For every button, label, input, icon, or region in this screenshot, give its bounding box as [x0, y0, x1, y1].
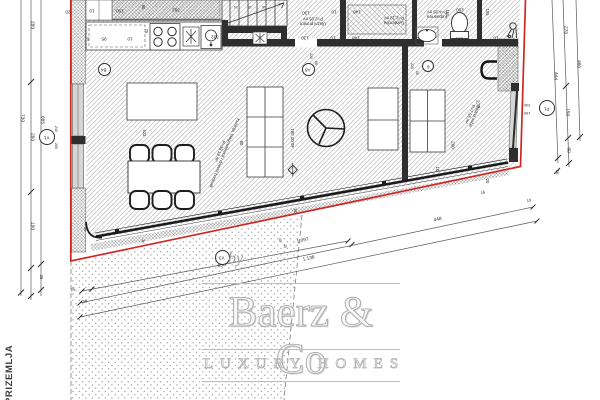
dim-label: 190	[29, 222, 34, 230]
dim-label: 20	[65, 9, 70, 14]
dim-label: 30	[140, 239, 145, 244]
dim-label: 260	[53, 143, 57, 149]
dim-label: 20	[485, 179, 489, 184]
dim-label: 80	[239, 141, 243, 146]
ref-circle: A8	[302, 63, 315, 76]
dim-label: 14	[234, 4, 238, 8]
dim-label: 148	[352, 35, 360, 40]
ref-circle: B4	[98, 63, 111, 76]
dim-label: 10	[414, 36, 419, 41]
dim-label: 15	[248, 4, 252, 8]
dim-label: 332	[211, 34, 219, 39]
ref-circle: P1	[539, 100, 555, 116]
watermark-by: by	[228, 250, 243, 268]
dim-label: 392	[172, 7, 180, 12]
dim-label: 50	[293, 209, 297, 214]
dim-label: 260	[455, 36, 463, 41]
plan-title: PRIZEMLJA	[4, 345, 15, 400]
dim-label: 16	[262, 4, 266, 8]
dim-label: 40	[277, 238, 281, 242]
watermark-rule-bottom	[202, 381, 400, 382]
room-label: KupaonicaP=4.05 m²	[427, 9, 447, 20]
dim-label: 30	[82, 227, 86, 231]
dim-label: 06	[414, 71, 418, 75]
dim-label: 220	[308, 53, 312, 59]
dim-label: 130	[301, 35, 309, 40]
dim-label: 10	[493, 35, 498, 40]
dim-label: 90	[141, 5, 145, 10]
floor-plan-canvas: 2010100392907559510332141516130101481301…	[0, 0, 600, 400]
watermark-rule-top	[202, 283, 400, 284]
ref-circle: 6	[422, 60, 434, 72]
dim-label: 06	[313, 61, 317, 65]
kitchen-island	[127, 83, 197, 120]
dim-label: 25	[282, 244, 286, 248]
room-label: Ulazni prostorP=2.05 m²	[300, 16, 327, 27]
room-label: GarderobaP=2.19 m²	[384, 15, 405, 26]
dim-label: 100	[116, 8, 124, 13]
dim-label: 130	[302, 10, 310, 15]
dim-label: 444	[551, 72, 556, 80]
dim-label: 150	[524, 111, 531, 115]
dim-label: 730	[19, 114, 24, 122]
watermark-tagline: LUXURY HOMES	[202, 356, 407, 373]
dim-label: 685	[39, 116, 44, 124]
dim-label: 95	[101, 36, 106, 41]
dim-label: 10	[331, 9, 336, 14]
dining-set	[128, 145, 200, 209]
dim-label: 240	[53, 126, 57, 132]
dim-label: ±0.00 381	[291, 128, 295, 148]
dim-label: 148	[353, 9, 361, 14]
dim-label: 220	[409, 63, 413, 69]
dim-label: 16	[555, 170, 559, 175]
dim-label: 280	[29, 21, 34, 29]
dim-label: 260	[29, 133, 34, 141]
dim-label: 10	[127, 36, 132, 41]
dim-label: 260	[450, 141, 455, 149]
dim-label: 60	[564, 147, 569, 153]
ref-circle: V1	[39, 129, 55, 145]
dim-label: 522	[142, 130, 146, 137]
dim-label: 260	[456, 7, 464, 12]
dim-label: 240	[524, 103, 531, 107]
dim-label: 75	[144, 29, 148, 34]
dim-label: 150	[563, 108, 568, 116]
toilet-icon	[452, 13, 468, 34]
dim-label: 10	[89, 8, 94, 13]
dim-label: 5	[87, 36, 90, 41]
dim-label: 25	[39, 275, 43, 280]
watermark-rule-mid	[202, 349, 400, 350]
dining-table	[128, 161, 200, 193]
dim-label: 155	[485, 9, 489, 16]
dim-label: 10	[435, 167, 439, 172]
dim-label: 10	[330, 35, 335, 40]
dim-label: 270	[561, 26, 566, 34]
dim-label: 480	[574, 60, 579, 68]
